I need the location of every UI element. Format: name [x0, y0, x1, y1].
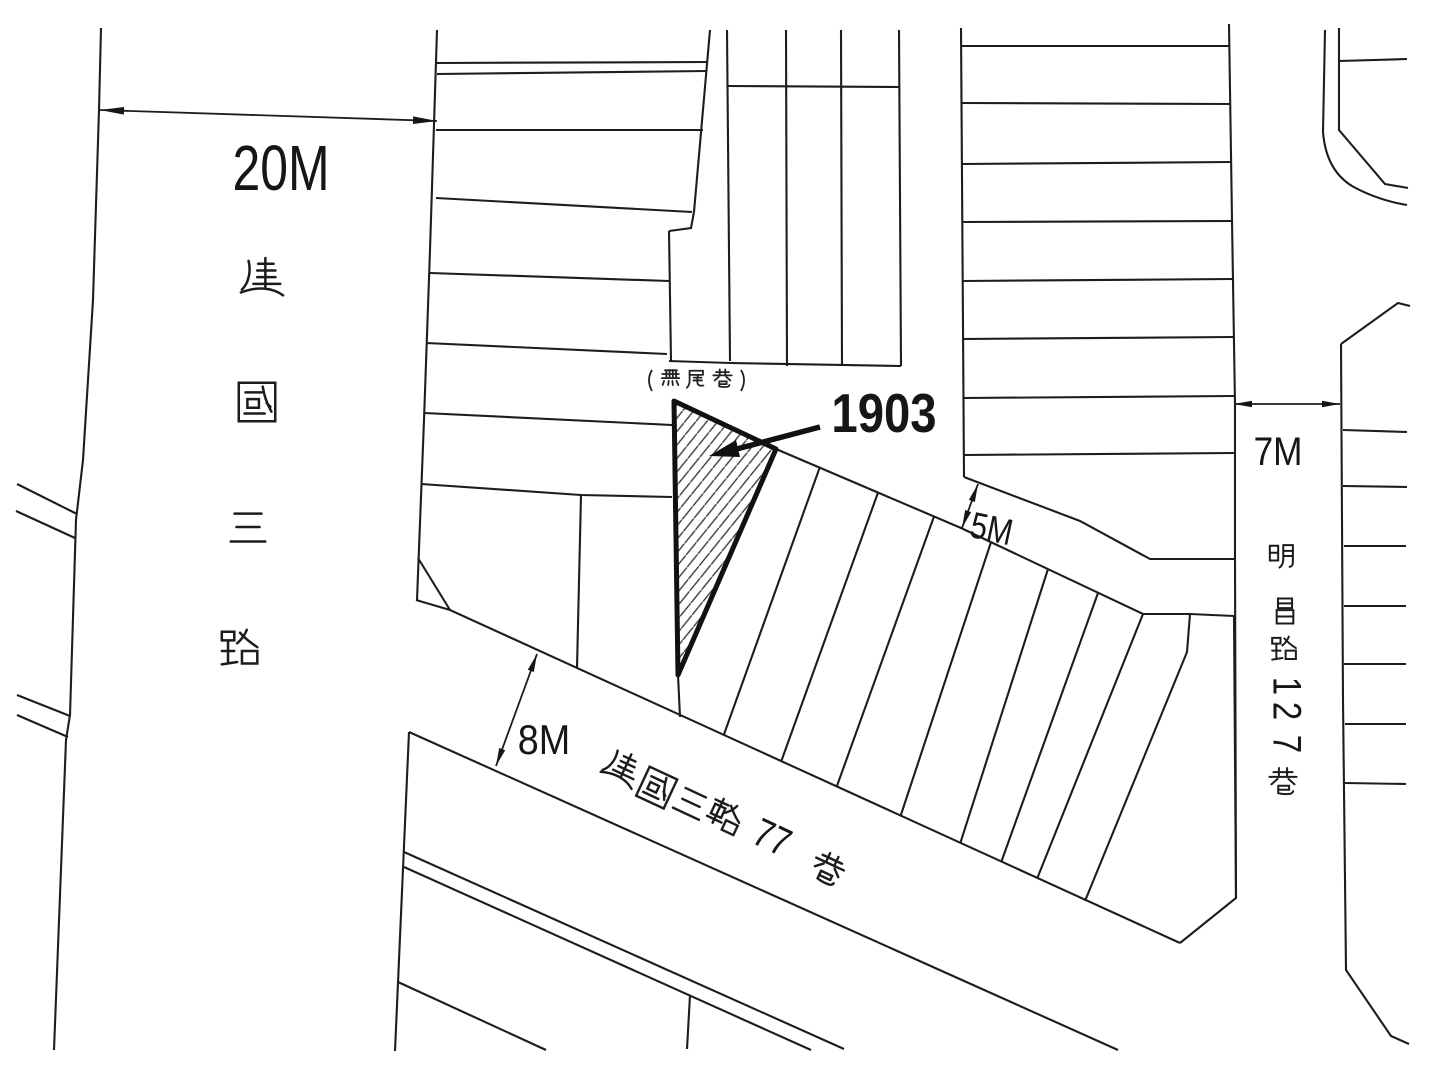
svg-text:2: 2 [1265, 702, 1310, 720]
svg-text:20M: 20M [232, 133, 329, 204]
svg-text:1: 1 [1265, 677, 1310, 695]
svg-text:7: 7 [1265, 735, 1310, 753]
svg-text:7M: 7M [1254, 429, 1303, 474]
svg-text:8M: 8M [518, 717, 570, 763]
svg-text:5M: 5M [967, 505, 1017, 554]
svg-text:1903: 1903 [831, 383, 936, 444]
